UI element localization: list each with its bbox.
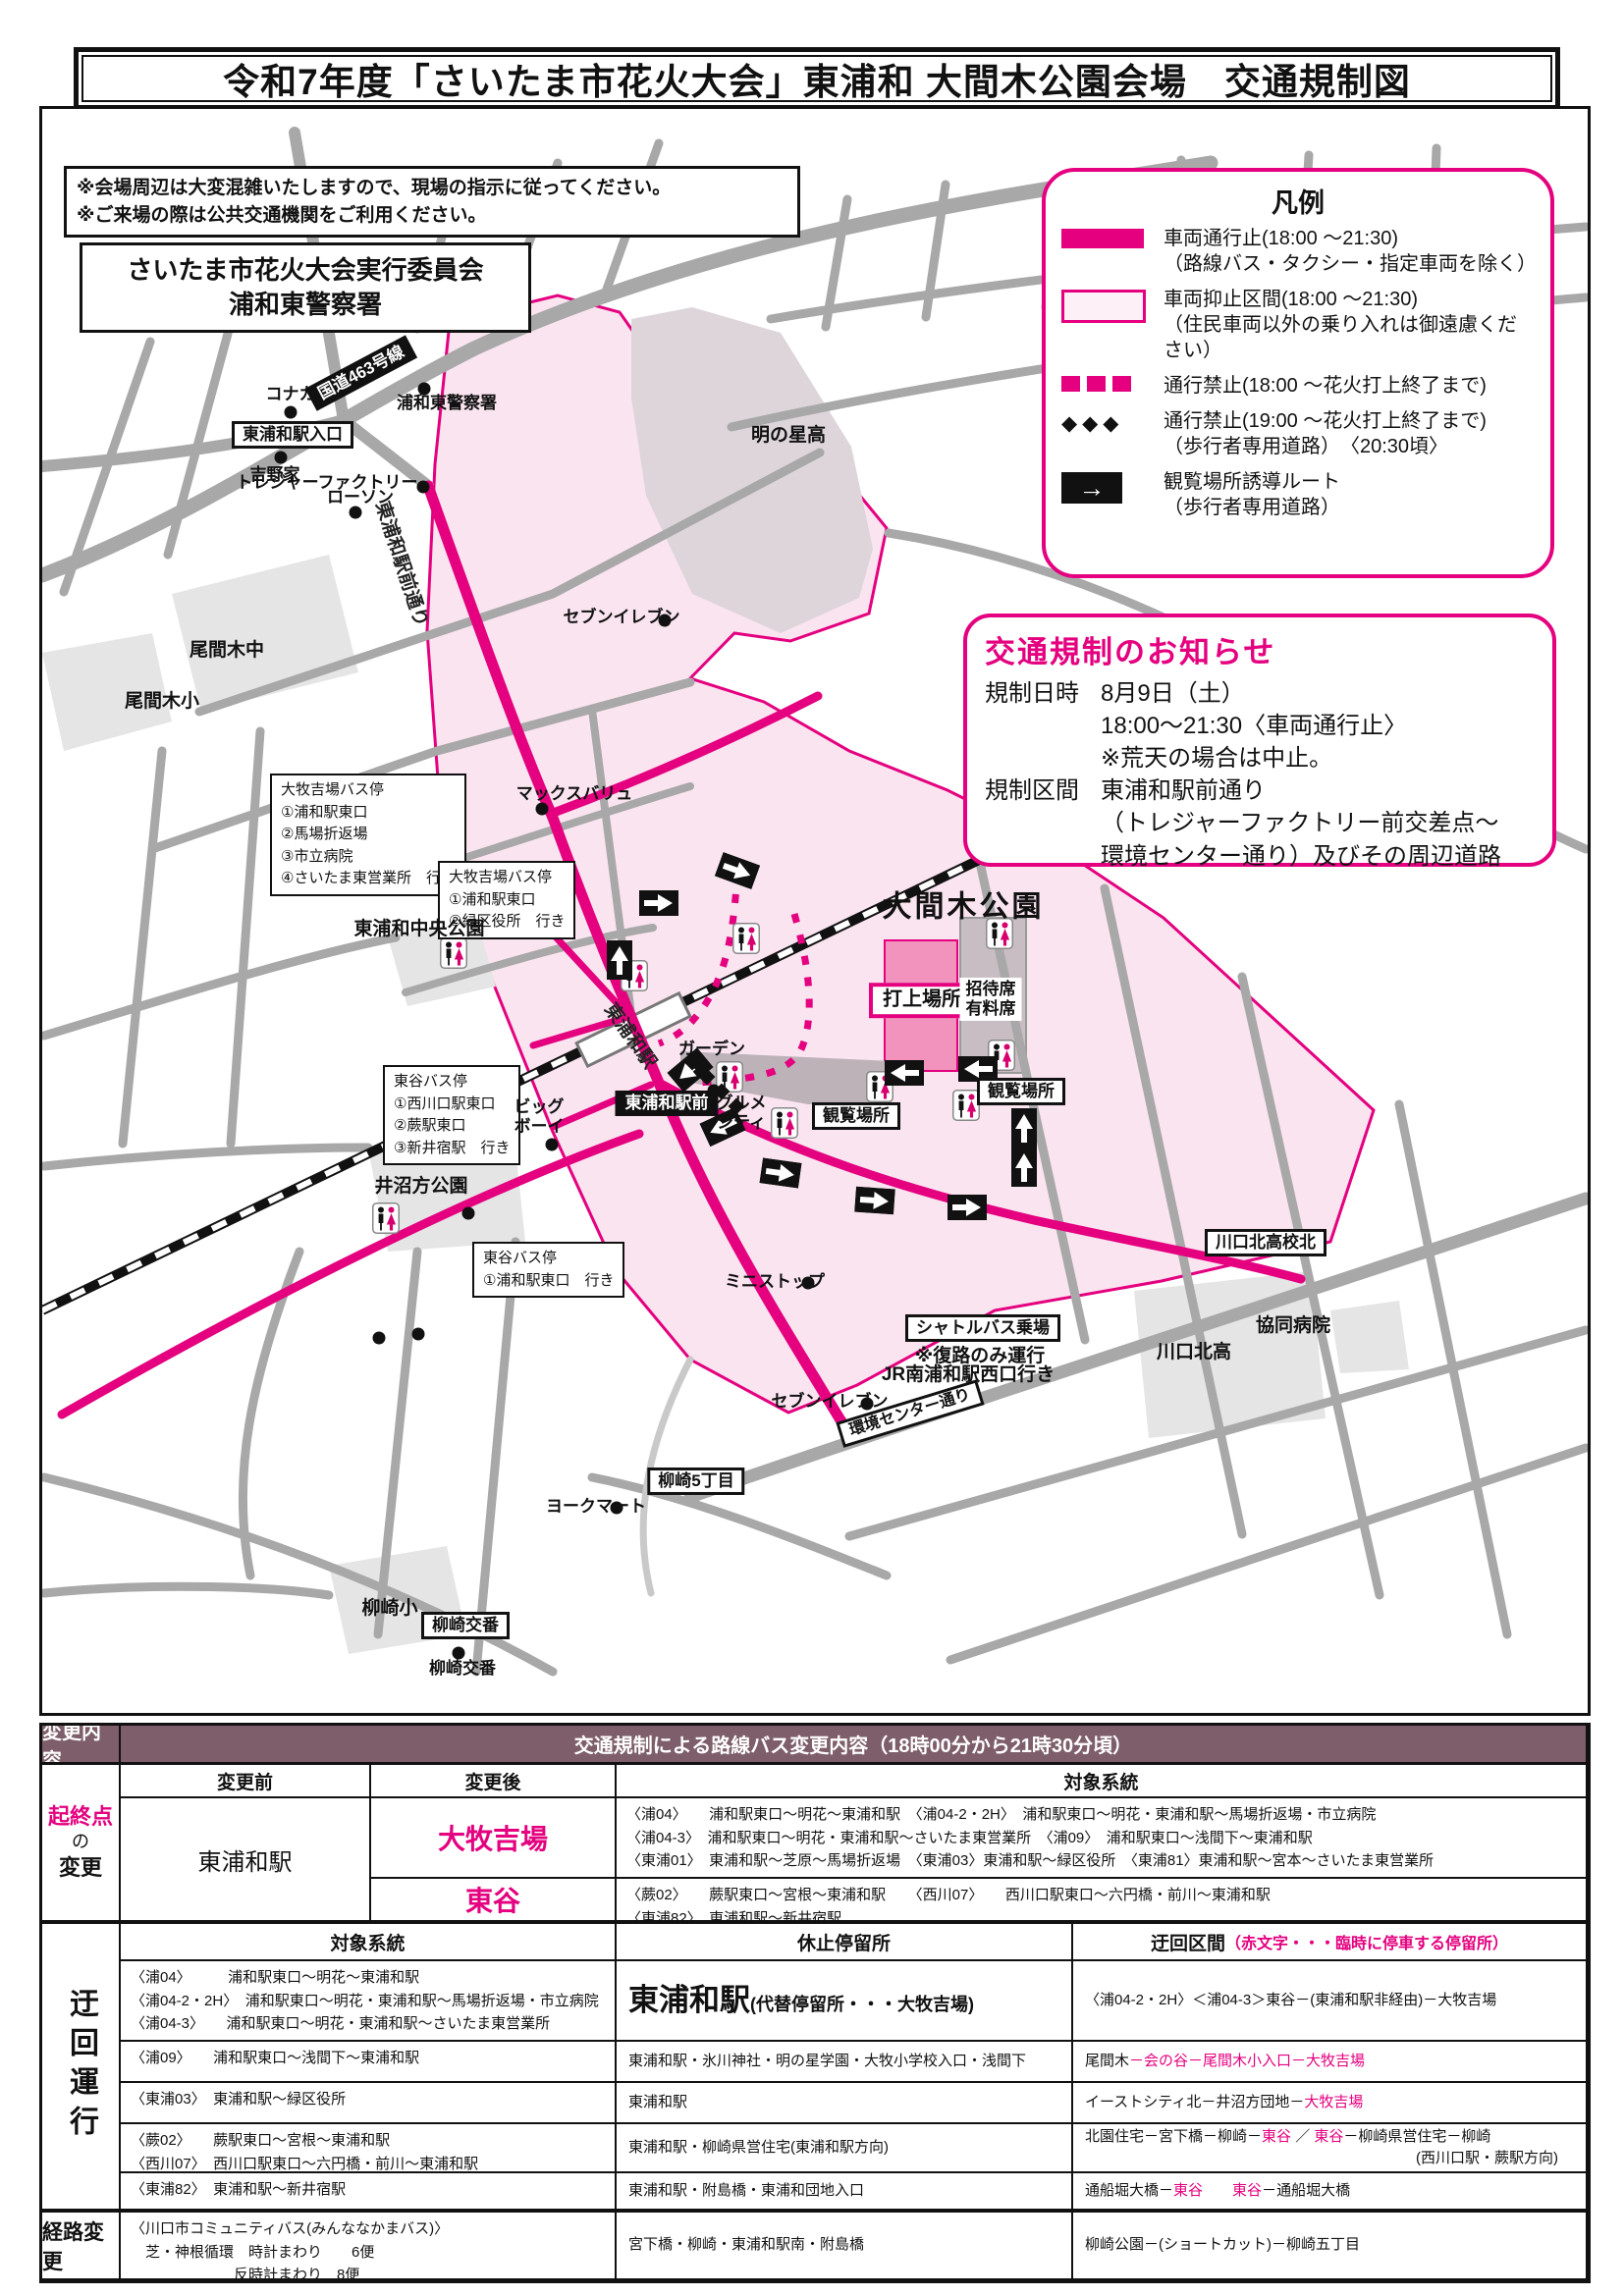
viewing-area-2: 観覧場所	[977, 1078, 1065, 1105]
after-stop: 東谷	[371, 1879, 617, 1924]
legend-item: 車両通行止(18:00 ～21:30)（路線バス・タクシー・指定車両を除く）	[1061, 226, 1535, 277]
systems-list: 〈蕨02〉 蕨駅東口～宮根～東浦和駅 〈西川07〉 西川口駅東口～六円橋・前川～…	[121, 2124, 617, 2173]
warning-line: ※会場周辺は大変混雑いたしますので、現場の指示に従ってください。	[77, 175, 787, 202]
busstop-higashiya-2: 東谷バス停①浦和駅東口 行き	[472, 1242, 624, 1298]
shuttle-bus-stop: シャトルバス乗場	[905, 1314, 1060, 1342]
park-chuo: 東浦和中央公園	[353, 919, 484, 940]
table-title: 交通規制による路線バス変更内容（18時00分から21時30分頃）	[121, 1726, 1588, 1765]
poi-dot	[546, 1139, 559, 1151]
legend-box: 凡例 車両通行止(18:00 ～21:30)（路線バス・タクシー・指定車両を除く…	[1042, 168, 1554, 578]
poi-kyodo-hospital: 協同病院	[1256, 1315, 1330, 1337]
legend-title: 凡例	[1061, 182, 1535, 220]
organizer-box: さいたま市花火大会実行委員会 浦和東警察署	[80, 242, 531, 333]
poi-yanagisaki-koban: 柳崎交番	[429, 1659, 496, 1679]
school-omagisho: 尾間木小	[125, 691, 199, 713]
diamond-closure-swatch: ◆◆◆	[1061, 408, 1164, 459]
busstop-omagi-1: 大牧吉場バス停①浦和駅東口②馬場折返場③市立病院④さいたま東営業所 行き	[270, 774, 466, 896]
notice-label: 規制日時	[985, 677, 1101, 774]
poi-dot	[708, 1085, 721, 1097]
poi-dot	[275, 452, 288, 464]
station-higashiurawa: 東浦和駅	[599, 999, 660, 1073]
col-before: 変更前	[121, 1765, 371, 1798]
organizer-line: 浦和東警察署	[86, 288, 524, 322]
poi-dot	[536, 803, 549, 816]
suspended-stops: 東浦和駅・柳崎県営住宅(東浦和駅方向)	[617, 2124, 1073, 2173]
col-detour: 迂回区間（赤文字・・・臨時に停車する停留所）	[1073, 1924, 1588, 1961]
after-stop: 大牧吉場	[371, 1798, 617, 1879]
poi-dot	[462, 1207, 475, 1220]
suspended-stops: 東浦和駅・附島橋・東浦和団地入口	[617, 2173, 1073, 2213]
systems-list: 〈蕨02〉 蕨駅東口～宮根～東浦和駅 〈西川07〉 西川口駅東口～六円橋・前川～…	[617, 1879, 1588, 1924]
detour-section: 柳崎公園－(ショートカット)－柳崎五丁目	[1073, 2213, 1588, 2280]
traffic-regulation-flyer: 令和7年度「さいたま市花火大会」東浦和 大間木公園会場 交通規制図	[0, 0, 1624, 2296]
systems-list: 〈浦09〉 浦和駅東口～浅間下～東浦和駅	[121, 2042, 617, 2083]
poi-dot	[350, 507, 362, 519]
detour-section: 〈浦04-2・2H〉＜浦04-3＞東谷－(東浦和駅非経由)－大牧吉場	[1073, 1961, 1588, 2042]
poi-konaka: コナカ	[266, 385, 316, 404]
systems-list: 〈浦04〉 浦和駅東口～明花～東浦和駅 〈浦04-2・2H〉 浦和駅東口～明花・…	[617, 1798, 1588, 1879]
poi-yorkmart: ヨークマート	[546, 1497, 646, 1517]
legend-item: 通行禁止(18:00 ～花火打上終了まで)	[1061, 373, 1535, 399]
poi-dot	[802, 1277, 815, 1290]
map-frame: 国道463号線コナカ浦和東警察署東浦和駅入口吉野家ローソン東浦和駅前通り尾間木中…	[39, 106, 1591, 1716]
regulation-notice-box: 交通規制のお知らせ 規制日時 8月9日（土） 18:00～21:30〈車両通行止…	[963, 614, 1556, 867]
section3-header: 経路変更	[42, 2213, 121, 2280]
notice-title: 交通規制のお知らせ	[985, 627, 1535, 671]
poi-gourmet-city: グルメシティ	[717, 1094, 767, 1133]
school-kawaguchikita: 川口北高	[1157, 1342, 1231, 1363]
bus-change-table: 変更内容 交通規制による路線バス変更内容（18時00分から21時30分頃） 起終…	[39, 1723, 1591, 2283]
poi-dot	[659, 614, 672, 627]
school-omaginaka: 尾間木中	[189, 640, 264, 662]
road-kankyo-center: 環境センター通り	[836, 1379, 984, 1448]
legend-item: → 観覧場所誘導ルート（歩行者専用道路）	[1061, 469, 1535, 520]
poi-dot	[693, 1058, 706, 1071]
poi-police: 浦和東警察署	[397, 394, 497, 413]
poi-garden: ガーデン	[678, 1040, 745, 1059]
poi-dot	[453, 1647, 465, 1660]
park-inumagata: 井沼方公園	[374, 1176, 467, 1198]
legend-item: ◆◆◆ 通行禁止(19:00 ～花火打上終了まで)（歩行者専用道路） 〈20:3…	[1061, 408, 1535, 459]
systems-list: 〈浦04〉 浦和駅東口～明花～東浦和駅 〈浦04-2・2H〉 浦和駅東口～明花・…	[121, 1961, 617, 2042]
notice-label: 規制区間	[985, 774, 1101, 872]
poi-maxvalu: マックスバリュ	[516, 784, 633, 804]
school-akenohoshi: 明の星高	[751, 425, 826, 447]
poi-dot	[611, 1502, 623, 1515]
junction-higashiurawa-iriguchi: 東浦和駅入口	[232, 421, 353, 449]
poi-dot	[418, 383, 431, 396]
dashed-closure-swatch	[1061, 373, 1164, 399]
restraint-zone-swatch	[1061, 287, 1164, 363]
junction-yanagisaki5: 柳崎5丁目	[647, 1468, 744, 1495]
busstop-higashiya-1: 東谷バス停①西川口駅東口②蕨駅東口③新井宿駅 行き	[383, 1065, 520, 1165]
poi-dot	[417, 481, 430, 494]
col-systems: 対象系統	[121, 1924, 617, 1961]
col-after: 変更後	[371, 1765, 617, 1798]
park-omagi: 大間木公園	[883, 889, 1045, 924]
col-suspended: 休止停留所	[617, 1924, 1073, 1961]
road-ekimae-dori: 東浦和駅前通り	[370, 499, 431, 629]
guide-route-swatch: →	[1061, 469, 1164, 520]
poi-dot	[861, 1398, 874, 1411]
systems-list: 〈川口市コミュニティバス(みんななかまバス)〉 芝・神根循環 時計まわり 6便 …	[121, 2213, 617, 2280]
detour-section: 通船堀大橋－東谷 東谷－通船堀大橋	[1073, 2173, 1588, 2213]
section2-header: 迂回運行	[42, 1924, 121, 2213]
poi-dot	[285, 406, 298, 419]
systems-list: 〈東浦03〉 東浦和駅～緑区役所	[121, 2083, 617, 2124]
suspended-stops: 東浦和駅(代替停留所・・・大牧吉場)	[617, 1961, 1073, 2042]
warning-box: ※会場周辺は大変混雑いたしますので、現場の指示に従ってください。 ※ご来場の際は…	[64, 166, 800, 238]
systems-list: 〈東浦82〉 東浦和駅～新井宿駅	[121, 2173, 617, 2213]
closed-road-swatch	[1061, 226, 1164, 277]
before-station: 東浦和駅	[121, 1798, 371, 1924]
detour-section: イーストシティ北－井沼方団地－大牧吉場	[1073, 2083, 1588, 2124]
poi-bigboy: ビッグボーイ	[514, 1097, 565, 1137]
suspended-stops: 東浦和駅	[617, 2083, 1073, 2124]
warning-line: ※ご来場の際は公共交通機関をご利用ください。	[77, 202, 787, 230]
junction-yanagisaki-koban: 柳崎交番	[421, 1612, 510, 1639]
junction-ekimae: 東浦和駅前	[616, 1091, 719, 1116]
legend-item: 車両抑止区間(18:00 ～21:30)（住民車両以外の乗り入れは御遠慮ください…	[1061, 287, 1535, 363]
school-yanagisakisho: 柳崎小	[361, 1598, 417, 1620]
section1-header: 起終点 の 変更	[42, 1765, 121, 1924]
organizer-line: さいたま市花火大会実行委員会	[86, 253, 524, 288]
suspended-stops: 東浦和駅・氷川神社・明の星学園・大牧小学校入口・浅間下	[617, 2042, 1073, 2083]
col-systems: 対象系統	[617, 1765, 1588, 1798]
junction-kawaguchikita: 川口北高校北	[1205, 1229, 1326, 1256]
detour-section: 尾間木－会の谷－尾間木小入口－大牧吉場	[1073, 2042, 1588, 2083]
table-corner: 変更内容	[42, 1726, 121, 1765]
seat-area: 招待席有料席	[960, 978, 1022, 1021]
page-title: 令和7年度「さいたま市花火大会」東浦和 大間木公園会場 交通規制図	[223, 52, 1411, 105]
viewing-area-1: 観覧場所	[812, 1102, 900, 1130]
detour-section: 北園住宅－宮下橋－柳崎－東谷 ／ 東谷－柳崎県営住宅－柳崎 (西川口駅・蕨駅方向…	[1073, 2124, 1588, 2173]
poi-treasure-factory: トレジャーファクトリー	[236, 473, 417, 493]
title-banner: 令和7年度「さいたま市花火大会」東浦和 大間木公園会場 交通規制図	[74, 47, 1560, 110]
suspended-stops: 宮下橋・柳崎・東浦和駅南・附島橋	[617, 2213, 1073, 2280]
